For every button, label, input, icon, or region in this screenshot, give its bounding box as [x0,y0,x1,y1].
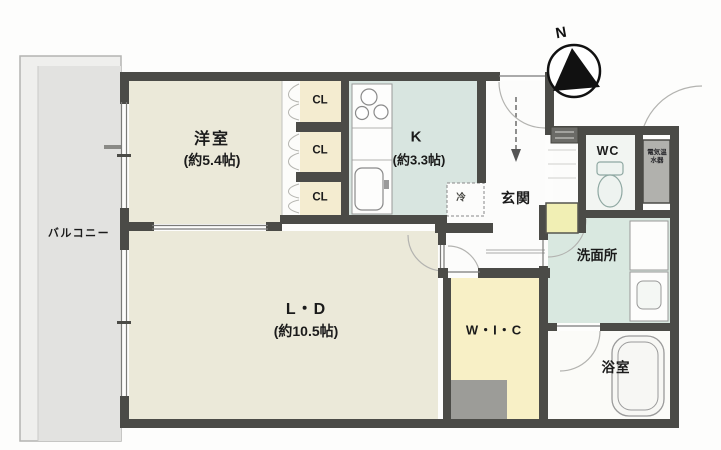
wic-label: W・I・C [466,324,522,339]
shoe-cabinet [546,203,578,233]
balcony-label: バルコニー [48,228,110,241]
western-room-size: (約5.4帖) [184,152,241,168]
meter-box [551,127,578,143]
closet-1-label: CL [312,94,327,107]
western-room-label: 洋室 [194,131,230,149]
living-dining-size: (約10.5帖) [274,323,339,339]
water-heater-label: 電気温水器 [645,149,669,165]
compass-icon [548,45,600,97]
bathtub-icon [612,336,664,416]
bathroom-label: 浴室 [602,360,631,376]
entrance-label: 玄関 [501,190,531,206]
closet-2-label: CL [312,144,327,157]
kitchen-size: (約3.3帖) [393,154,446,169]
washroom-label: 洗面所 [577,248,618,264]
floor-plan-drawing [0,0,721,450]
floor-plan: N バルコニー 洋室 (約5.4帖) CL CL CL K (約3.3帖) 玄関… [0,0,721,450]
wc-label: WC [597,144,620,158]
toilet-icon [597,162,623,207]
washing-machine-space [630,221,668,270]
entrance-side-floor [553,135,578,203]
pillar [451,380,507,420]
refrigerator-label: 冷 [456,194,466,205]
balcony-divider [104,145,121,149]
closet-3-label: CL [312,191,327,204]
vanity-sink [630,272,668,321]
kitchen-label: K [411,128,422,145]
living-dining-label: L・D [286,301,326,319]
balcony-area [20,56,121,441]
